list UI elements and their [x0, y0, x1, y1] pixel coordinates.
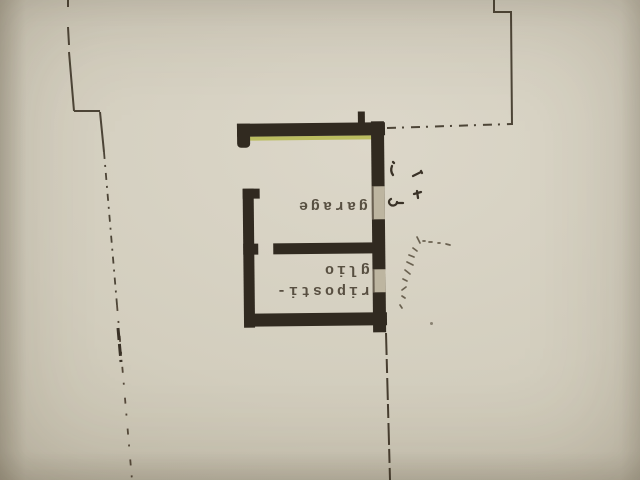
handwritten-annotation-upper [389, 162, 422, 206]
wall-bottom [247, 312, 387, 326]
storage-room-label: riposti- glio [288, 259, 370, 301]
garage-room-label: garage [292, 195, 372, 216]
left-boundary-dark-dash [118, 328, 121, 362]
wall-left [243, 189, 255, 328]
wall-right-opening-garage [372, 186, 385, 219]
storage-room-label-line1: riposti- [288, 280, 370, 301]
left-boundary-line [68, 0, 74, 111]
left-boundary-slant-dashed [104, 152, 117, 305]
wall-right-opening-storage [372, 269, 385, 292]
building-outline [237, 116, 391, 334]
wall-top-tick [358, 111, 365, 124]
floor-plan-photo: { "plan": { "rooms": [ { "label": "garag… [0, 0, 640, 480]
handwritten-annotation-lower [400, 237, 450, 308]
wall-left-top-stub [243, 189, 260, 199]
storage-room-label-line2: glio [288, 259, 370, 280]
lower-boundary-line [386, 333, 390, 480]
paper-speck [430, 322, 433, 325]
wall-divider-stub [243, 244, 258, 255]
dashed-connection-line [387, 124, 512, 128]
right-boundary-line [494, 0, 512, 125]
wall-right [371, 121, 386, 332]
left-boundary-slant-solid [100, 112, 104, 152]
wall-divider [273, 242, 374, 254]
wall-top-left-tip [237, 124, 250, 148]
